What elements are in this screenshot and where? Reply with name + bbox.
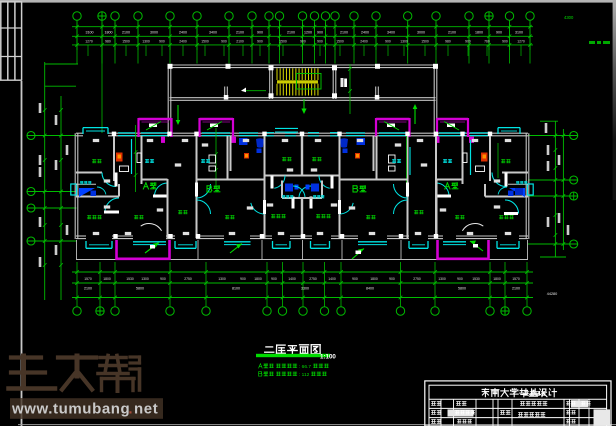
svg-text:2400: 2400 [360, 39, 368, 43]
svg-text:2400: 2400 [179, 31, 187, 35]
svg-text:2100: 2100 [287, 31, 295, 35]
svg-text:3100: 3100 [515, 31, 523, 35]
svg-text:5800: 5800 [136, 287, 144, 291]
svg-text:900: 900 [317, 31, 323, 35]
svg-text:net: net [134, 401, 158, 418]
svg-text:2100: 2100 [340, 31, 348, 35]
svg-text:760: 760 [484, 39, 490, 43]
svg-text:4300: 4300 [564, 15, 574, 20]
svg-text:www.tumubang: www.tumubang [11, 401, 130, 418]
svg-text:900: 900 [160, 277, 166, 281]
svg-text:1300: 1300 [438, 277, 446, 281]
svg-text:900: 900 [352, 277, 358, 281]
svg-text:2100: 2100 [122, 31, 130, 35]
svg-text:1800: 1800 [105, 31, 113, 35]
svg-text:3100: 3100 [86, 31, 94, 35]
svg-text:1270: 1270 [517, 39, 525, 43]
svg-text:980: 980 [105, 39, 111, 43]
svg-text:900: 900 [257, 31, 263, 35]
svg-text:2100: 2100 [236, 39, 244, 43]
svg-text:1:100: 1:100 [320, 353, 336, 360]
svg-text:900: 900 [502, 39, 508, 43]
svg-text:3400: 3400 [209, 31, 217, 35]
svg-text:900: 900 [457, 277, 463, 281]
svg-text:1300: 1300 [142, 39, 150, 43]
svg-text:: 112: : 112 [299, 372, 310, 378]
svg-text:900: 900 [257, 39, 263, 43]
svg-text:2400: 2400 [361, 31, 369, 35]
svg-text:1200: 1200 [304, 31, 312, 35]
svg-text:2100: 2100 [236, 31, 244, 35]
svg-text:2100: 2100 [448, 31, 456, 35]
svg-text:1300: 1300 [141, 277, 149, 281]
svg-text:5800: 5800 [458, 287, 466, 291]
svg-text:900: 900 [317, 39, 323, 43]
svg-text:900: 900 [300, 39, 306, 43]
svg-text:980: 980 [445, 39, 451, 43]
svg-text:3300: 3300 [301, 287, 309, 291]
svg-text:900: 900 [465, 39, 471, 43]
svg-text:900: 900 [271, 277, 277, 281]
svg-text:2750: 2750 [413, 277, 421, 281]
svg-text:900: 900 [496, 31, 502, 35]
svg-text:1570: 1570 [512, 277, 520, 281]
svg-text:1300: 1300 [218, 277, 226, 281]
svg-text:44280: 44280 [547, 292, 558, 296]
svg-text:900: 900 [221, 39, 227, 43]
svg-text:3400: 3400 [387, 31, 395, 35]
svg-text:1500: 1500 [201, 39, 209, 43]
svg-text:1800: 1800 [103, 277, 111, 281]
svg-text:900: 900 [240, 277, 246, 281]
svg-text:1530: 1530 [126, 277, 134, 281]
svg-text:8100: 8100 [232, 287, 240, 291]
svg-text:.: . [128, 401, 132, 418]
svg-text:1800: 1800 [493, 277, 501, 281]
svg-text:1500: 1500 [336, 39, 344, 43]
svg-text:3000: 3000 [417, 31, 425, 35]
svg-text:1270: 1270 [85, 39, 93, 43]
svg-text:900: 900 [385, 39, 391, 43]
svg-text:1500: 1500 [421, 39, 429, 43]
svg-text:1530: 1530 [472, 277, 480, 281]
svg-text:1800: 1800 [475, 31, 483, 35]
svg-text:1800: 1800 [254, 277, 262, 281]
svg-text:2100: 2100 [84, 287, 92, 291]
svg-text:1400: 1400 [288, 277, 296, 281]
svg-text:1300: 1300 [400, 39, 408, 43]
svg-text:1570: 1570 [84, 277, 92, 281]
svg-text:1800: 1800 [370, 277, 378, 281]
svg-text:: 66.7: : 66.7 [299, 364, 311, 370]
svg-text:1400: 1400 [328, 277, 336, 281]
svg-text:900: 900 [389, 277, 395, 281]
svg-text:2400: 2400 [179, 39, 187, 43]
svg-text:2100: 2100 [512, 287, 520, 291]
svg-text:3000: 3000 [150, 31, 158, 35]
svg-text:2750: 2750 [184, 277, 192, 281]
svg-text:900: 900 [159, 39, 165, 43]
svg-text:8400: 8400 [366, 287, 374, 291]
svg-text:1500: 1500 [279, 39, 287, 43]
svg-text:1500: 1500 [122, 39, 130, 43]
svg-text:2750: 2750 [309, 277, 317, 281]
